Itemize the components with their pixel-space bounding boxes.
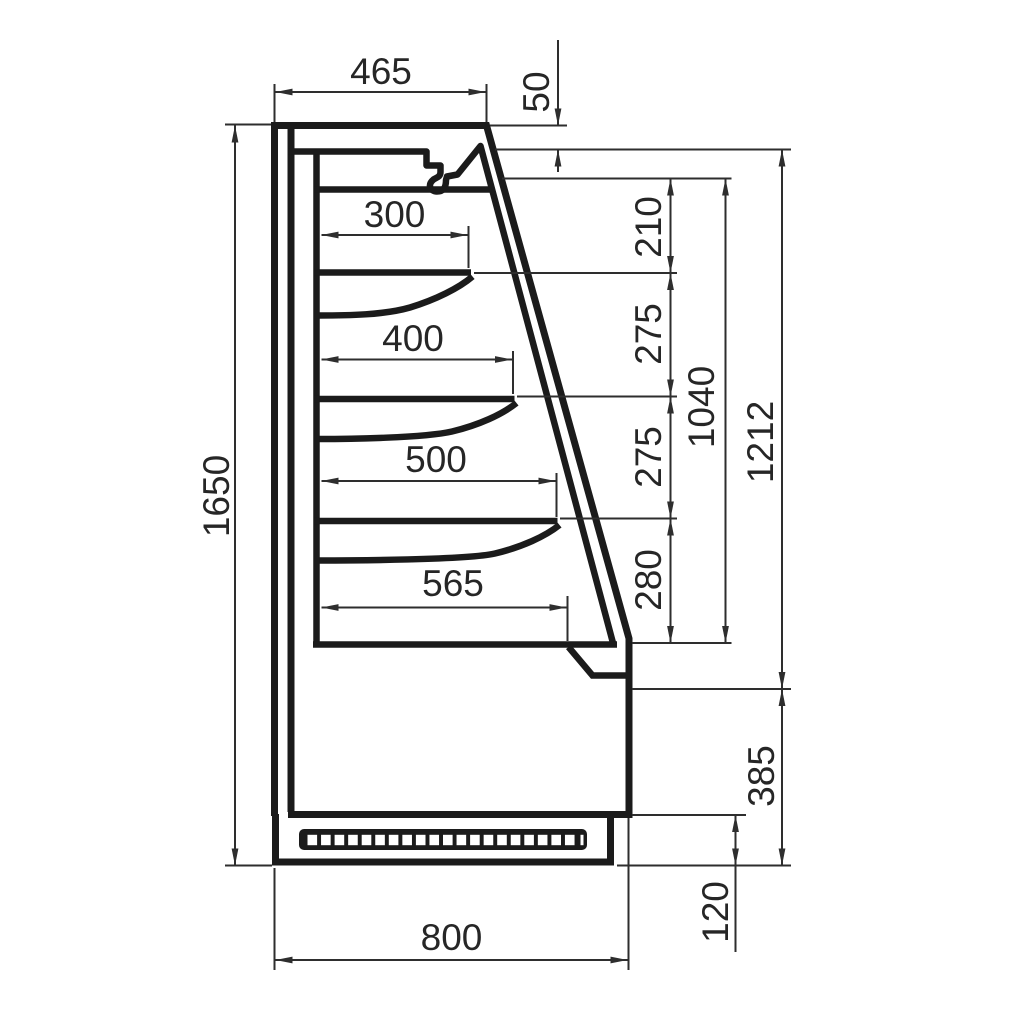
- svg-text:565: 565: [422, 563, 484, 604]
- svg-text:50: 50: [516, 71, 557, 112]
- svg-text:1040: 1040: [681, 366, 722, 448]
- svg-text:210: 210: [628, 196, 669, 258]
- svg-text:465: 465: [350, 51, 412, 92]
- svg-text:120: 120: [695, 881, 736, 943]
- svg-text:1650: 1650: [196, 455, 237, 537]
- svg-text:280: 280: [628, 549, 669, 611]
- svg-text:275: 275: [628, 303, 669, 365]
- svg-text:275: 275: [628, 426, 669, 488]
- svg-text:400: 400: [382, 318, 444, 359]
- svg-text:1212: 1212: [740, 401, 781, 483]
- svg-text:800: 800: [421, 917, 483, 958]
- svg-text:385: 385: [741, 745, 782, 807]
- svg-text:300: 300: [364, 194, 426, 235]
- svg-text:500: 500: [405, 439, 467, 480]
